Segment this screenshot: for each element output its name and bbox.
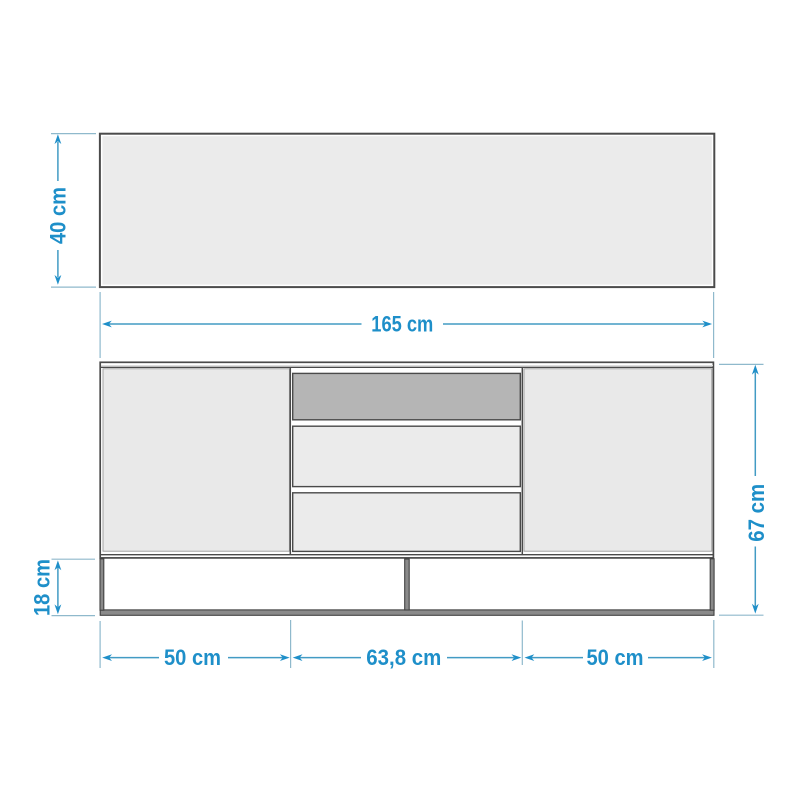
svg-text:40 cm: 40 cm [45, 187, 70, 244]
svg-text:50 cm: 50 cm [587, 645, 644, 670]
svg-text:67 cm: 67 cm [744, 484, 769, 542]
svg-text:50 cm: 50 cm [164, 645, 221, 670]
svg-text:165 cm: 165 cm [371, 311, 433, 336]
svg-text:18 cm: 18 cm [30, 559, 55, 616]
svg-text:63,8 cm: 63,8 cm [366, 645, 441, 670]
